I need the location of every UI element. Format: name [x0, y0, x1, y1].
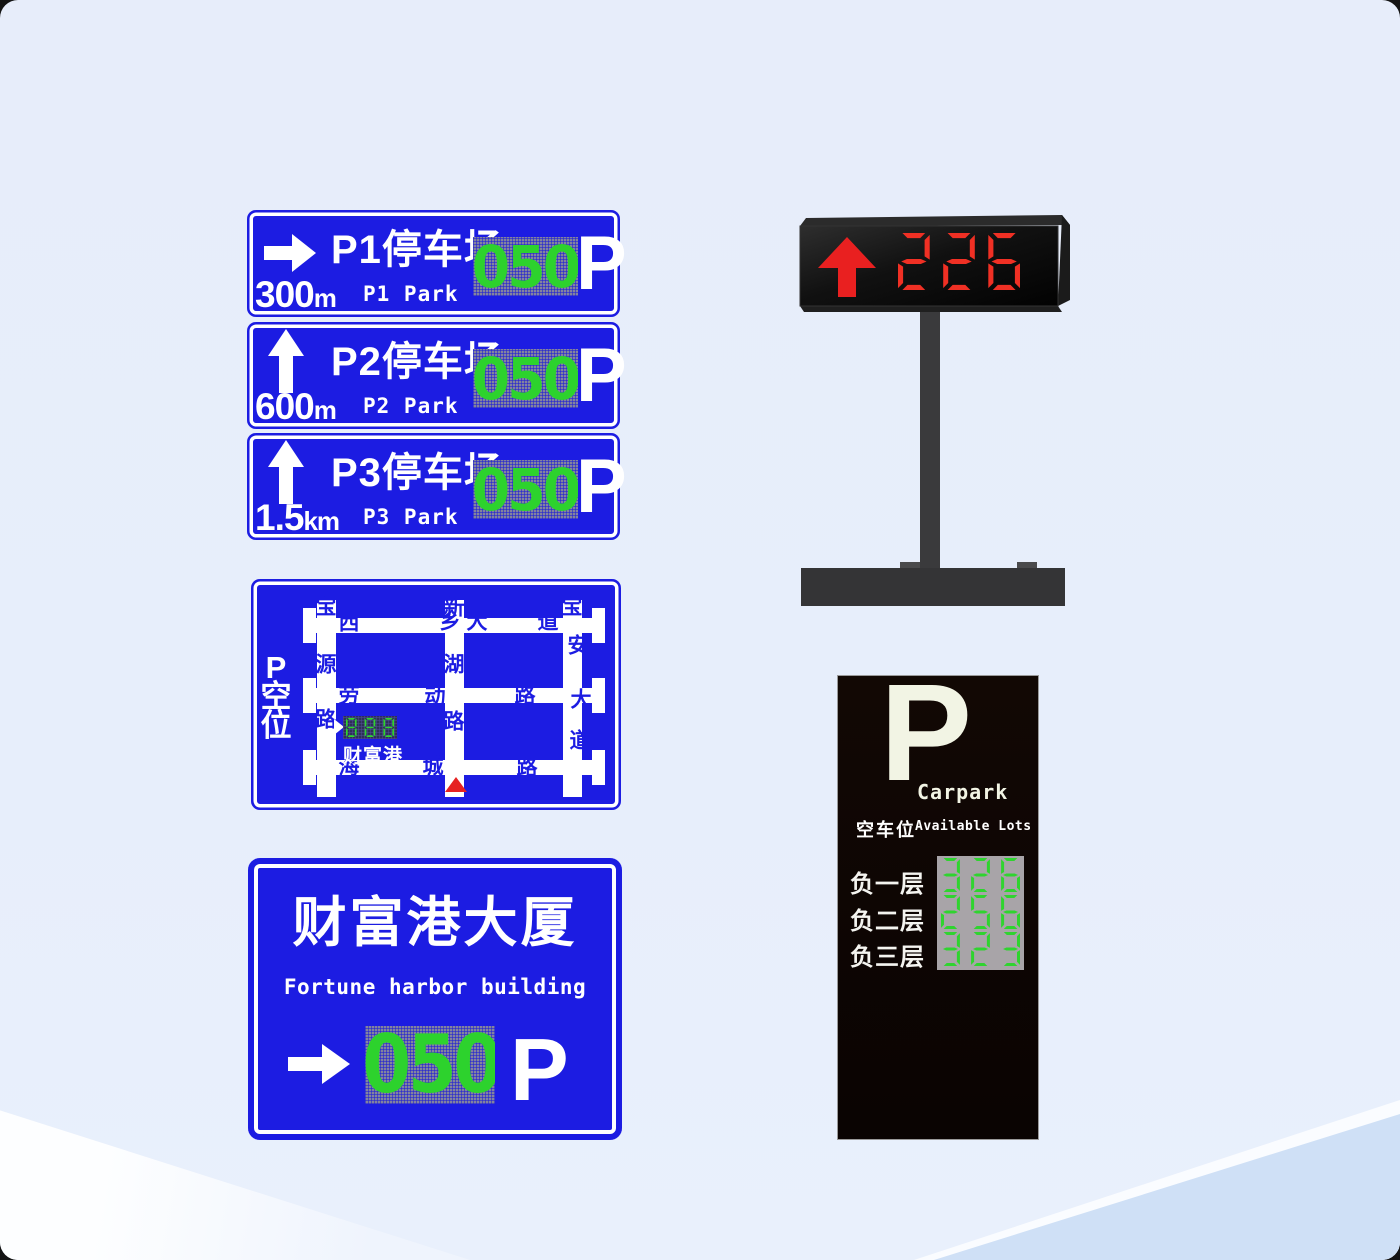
right-arrow-icon [264, 234, 316, 277]
display-side-face [1058, 215, 1070, 306]
distance-unit: km [303, 506, 339, 536]
available-count: 050 [473, 238, 578, 296]
available-count-panel: 050 [473, 237, 578, 296]
street-label: 湖 [444, 655, 465, 676]
side-label-char: P [255, 653, 297, 682]
street-label: 路 [444, 712, 465, 733]
parking-symbol: P [576, 338, 627, 414]
building-sign: 财富港大厦 Fortune harbor building 050 P [248, 858, 622, 1140]
available-lots-label-en: Available Lots [915, 819, 1032, 834]
parking-signage-sheet: 300m P1停车场 P1 Park 050 P 600m P2停车场 P2 P… [0, 0, 1400, 1260]
street-label: 路 [515, 686, 536, 707]
level-label: 负二层 [850, 901, 925, 936]
display-base [801, 568, 1065, 606]
direction-sign-p2: 600m P2停车场 P2 Park 050 P [247, 322, 620, 429]
building-title: 财富港大厦 [248, 894, 622, 953]
carpark-totem: P Carpark 空车位 Available Lots 负一层 负二层 负三层 [837, 675, 1039, 1140]
street-label: 西 [339, 613, 360, 634]
available-count-panel: 050 [473, 349, 578, 408]
direction-sign-p3: 1.5km P3停车场 P3 Park 050 P [247, 433, 620, 540]
available-count-panel: 050 [365, 1026, 495, 1104]
street-label: 劳 [339, 686, 360, 707]
parking-symbol: P [576, 226, 627, 302]
building-subtitle: Fortune harbor building [248, 975, 622, 999]
street-label: 宝 [316, 597, 337, 618]
level-count [941, 932, 1020, 966]
distance-value: 300 [255, 274, 314, 315]
display-pole [920, 304, 940, 570]
road-stub [592, 750, 605, 785]
street-label: 动 [425, 687, 446, 708]
side-label-char: 位 [255, 711, 297, 740]
available-count: 050 [473, 461, 578, 519]
map-sign: P 空 位 宝源路新湖路宝安大道西乡大道劳动路海城路 财富港 [251, 579, 621, 810]
street-label: 路 [517, 758, 538, 779]
level-count [941, 895, 1020, 929]
you-are-here-marker [445, 777, 467, 792]
road-vertical-1 [317, 600, 336, 797]
site-name: 财富港 [343, 741, 403, 768]
distance-unit: m [314, 283, 336, 313]
carpark-name-en: P2 Park [363, 394, 459, 418]
vacancy-side-label: P 空 位 [255, 653, 297, 740]
available-count: 050 [365, 1026, 495, 1104]
road-stub [303, 678, 316, 713]
level-label: 负一层 [850, 864, 925, 899]
available-count: 050 [473, 350, 578, 408]
distance-label: 600m [255, 388, 336, 425]
road-stub [303, 750, 316, 785]
road-stub [592, 678, 605, 713]
parking-symbol: P [510, 1026, 569, 1114]
display-bottom-lip [800, 306, 1062, 312]
level-count [941, 858, 1020, 892]
street-label: 乡 [440, 612, 461, 633]
street-label: 道 [538, 612, 559, 633]
street-label: 城 [423, 757, 444, 778]
available-lots-label-cn: 空车位 [856, 816, 916, 842]
level-label: 负三层 [850, 937, 925, 972]
street-label: 道 [570, 731, 591, 752]
side-label-char: 空 [255, 682, 297, 711]
street-label: 大 [571, 690, 592, 711]
carpark-title: Carpark [917, 780, 1008, 804]
road-stub [303, 608, 316, 643]
distance-label: 300m [255, 276, 336, 313]
right-arrow-icon [288, 1044, 350, 1089]
display-top-face [800, 215, 1070, 226]
street-label: 源 [316, 655, 337, 676]
display-count [898, 233, 1020, 290]
distance-value: 1.5 [255, 497, 303, 538]
direction-sign-p1: 300m P1停车场 P1 Park 050 P [247, 210, 620, 317]
street-label: 宝 [562, 597, 583, 618]
distance-unit: m [314, 395, 336, 425]
street-label: 大 [467, 612, 488, 633]
distance-value: 600 [255, 386, 314, 427]
distance-label: 1.5km [255, 499, 339, 536]
parking-symbol: P [576, 449, 627, 525]
road-stub [592, 608, 605, 643]
map-led-count [346, 718, 394, 737]
carpark-name-en: P1 Park [363, 282, 459, 306]
available-count-panel: 050 [473, 460, 578, 519]
street-label: 安 [568, 636, 589, 657]
carpark-name-en: P3 Park [363, 505, 459, 529]
